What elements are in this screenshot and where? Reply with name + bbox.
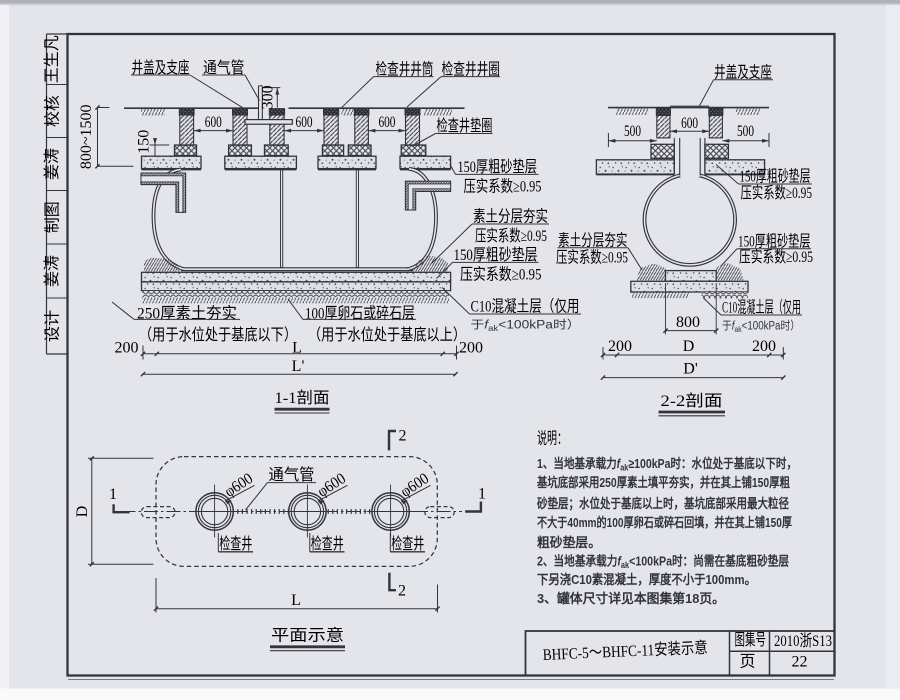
svg-text:1、当地基承载力fak≥100kPa时：水位处于基底以下时，: 1、当地基承载力fak≥100kPa时：水位处于基底以下时， bbox=[537, 456, 797, 473]
svg-text:设计: 设计 bbox=[44, 310, 62, 342]
svg-text:C10混凝土层（仅用: C10混凝土层（仅用 bbox=[722, 299, 801, 317]
svg-text:200: 200 bbox=[115, 339, 139, 356]
svg-text:压实系数≥0.95: 压实系数≥0.95 bbox=[739, 248, 813, 266]
svg-text:井盖及支座: 井盖及支座 bbox=[132, 59, 190, 77]
svg-text:于fak<100kPa时）: 于fak<100kPa时） bbox=[471, 319, 581, 334]
svg-text:200: 200 bbox=[608, 338, 632, 355]
svg-text:L: L bbox=[291, 592, 301, 609]
svg-text:300: 300 bbox=[260, 85, 277, 109]
svg-text:基坑底部采用250厚素土填平夯实，并在其上铺150厚粗: 基坑底部采用250厚素土填平夯实，并在其上铺150厚粗 bbox=[536, 475, 790, 490]
svg-text:姜涛: 姜涛 bbox=[43, 255, 61, 287]
svg-text:井盖及支座: 井盖及支座 bbox=[714, 64, 772, 82]
svg-text:压实系数≥0.95: 压实系数≥0.95 bbox=[475, 227, 547, 245]
svg-text:2、当地基承载力fak<100kPa时：尚需在基底粗砂垫层: 2、当地基承载力fak<100kPa时：尚需在基底粗砂垫层 bbox=[537, 553, 789, 570]
svg-text:制图: 制图 bbox=[44, 201, 62, 233]
svg-text:砂垫层；水位处于基底以上时，基坑底部采用最大粒径: 砂垫层；水位处于基底以上时，基坑底部采用最大粒径 bbox=[536, 496, 789, 512]
svg-text:检查井: 检查井 bbox=[219, 535, 252, 553]
svg-text:2: 2 bbox=[399, 428, 407, 445]
svg-text:（用于水位处于基底以上）: （用于水位处于基底以上） bbox=[308, 326, 466, 344]
svg-text:150: 150 bbox=[136, 130, 153, 154]
svg-text:王生凡: 王生凡 bbox=[43, 35, 61, 83]
svg-text:压实系数≥0.95: 压实系数≥0.95 bbox=[464, 178, 542, 196]
svg-text:D: D bbox=[683, 338, 695, 355]
svg-text:姜涛: 姜涛 bbox=[43, 148, 61, 180]
svg-text:下另浇C10素混凝土，厚度不小于100mm。: 下另浇C10素混凝土，厚度不小于100mm。 bbox=[537, 572, 756, 587]
svg-text:素土分层夯实: 素土分层夯实 bbox=[473, 208, 548, 226]
svg-text:200: 200 bbox=[752, 338, 776, 355]
svg-text:800~1500: 800~1500 bbox=[78, 104, 95, 169]
svg-text:150厚粗砂垫层: 150厚粗砂垫层 bbox=[740, 168, 811, 186]
svg-text:说明：: 说明： bbox=[537, 430, 567, 448]
svg-text:通气管: 通气管 bbox=[203, 59, 245, 77]
svg-text:粗砂垫层。: 粗砂垫层。 bbox=[537, 535, 601, 550]
svg-text:L': L' bbox=[292, 358, 305, 375]
svg-text:检查井垫圈: 检查井垫圈 bbox=[437, 117, 493, 135]
svg-text:2010浙S13: 2010浙S13 bbox=[774, 632, 832, 650]
svg-text:通气管: 通气管 bbox=[269, 466, 315, 484]
svg-text:600: 600 bbox=[378, 114, 395, 131]
svg-text:600: 600 bbox=[205, 114, 222, 131]
svg-text:（用于水位处于基底以下）: （用于水位处于基底以下） bbox=[139, 326, 297, 344]
svg-text:压实系数≥0.95: 压实系数≥0.95 bbox=[556, 248, 628, 266]
svg-text:600: 600 bbox=[681, 115, 698, 132]
svg-text:不大于40mm的100厚卵石或碎石回填，并在其上铺150厚: 不大于40mm的100厚卵石或碎石回填，并在其上铺150厚 bbox=[537, 515, 792, 530]
svg-text:压实系数≥0.95: 压实系数≥0.95 bbox=[741, 184, 813, 202]
svg-text:素土分层夯实: 素土分层夯实 bbox=[558, 231, 628, 249]
svg-text:压实系数≥0.95: 压实系数≥0.95 bbox=[460, 266, 542, 284]
svg-text:平面示意: 平面示意 bbox=[271, 625, 344, 644]
svg-text:500: 500 bbox=[737, 123, 754, 140]
svg-text:检查井井筒: 检查井井筒 bbox=[376, 61, 434, 79]
svg-text:150厚粗砂垫层: 150厚粗砂垫层 bbox=[458, 158, 538, 176]
svg-text:1: 1 bbox=[109, 486, 117, 503]
svg-text:1-1剖面: 1-1剖面 bbox=[275, 389, 330, 407]
svg-text:200: 200 bbox=[459, 339, 483, 356]
svg-text:检查井井圈: 检查井井圈 bbox=[442, 61, 501, 79]
svg-text:22: 22 bbox=[792, 654, 808, 671]
svg-text:150厚粗砂垫层: 150厚粗砂垫层 bbox=[454, 246, 538, 264]
svg-text:2-2剖面: 2-2剖面 bbox=[661, 392, 723, 410]
svg-text:页: 页 bbox=[739, 654, 755, 671]
svg-text:2: 2 bbox=[398, 582, 406, 599]
svg-text:校核: 校核 bbox=[44, 95, 62, 127]
svg-text:D: D bbox=[74, 506, 91, 518]
svg-text:C10混凝土层（仅用: C10混凝土层（仅用 bbox=[471, 298, 580, 316]
svg-text:D': D' bbox=[683, 361, 698, 378]
svg-text:检查井: 检查井 bbox=[391, 535, 424, 553]
svg-text:图集号: 图集号 bbox=[735, 631, 767, 649]
svg-text:150厚粗砂垫层: 150厚粗砂垫层 bbox=[738, 232, 811, 250]
svg-text:500: 500 bbox=[624, 123, 641, 140]
svg-text:1: 1 bbox=[478, 485, 486, 502]
svg-text:检查井: 检查井 bbox=[311, 535, 344, 553]
svg-text:600: 600 bbox=[296, 114, 313, 131]
svg-text:3、罐体尺寸详见本图集第18页。: 3、罐体尺寸详见本图集第18页。 bbox=[537, 591, 725, 606]
svg-text:于fak<100kPa时）: 于fak<100kPa时） bbox=[722, 320, 800, 335]
svg-text:800: 800 bbox=[676, 314, 700, 331]
svg-text:L: L bbox=[292, 339, 302, 356]
